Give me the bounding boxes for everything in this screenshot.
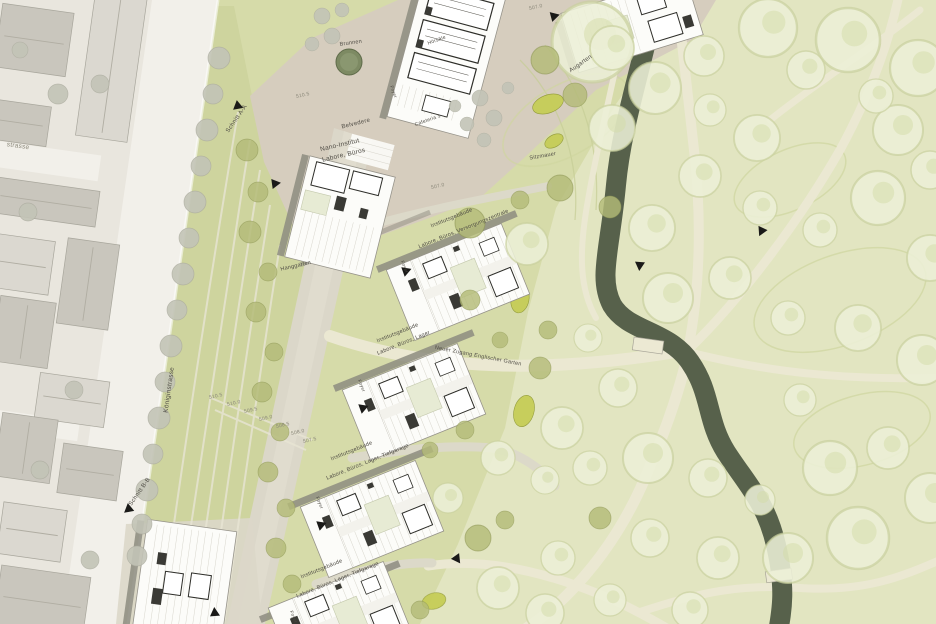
tree [589,507,611,529]
tree [502,82,514,94]
building-southwest [131,519,237,624]
tree [172,263,194,285]
tree [563,83,587,107]
tree [492,332,508,348]
tree [827,507,889,569]
city-block [57,443,123,501]
tree [481,441,515,475]
tree [803,441,857,495]
tree [335,3,349,17]
tree [246,302,266,322]
tree [529,357,551,379]
tree [456,421,474,439]
tree [599,369,637,407]
tree [531,466,559,494]
tree [184,191,206,213]
tree [784,384,816,416]
tree [65,381,83,399]
site-plan-canvas [0,0,936,624]
tree [689,459,727,497]
tree [196,119,218,141]
tree [179,228,199,248]
tree [143,444,163,464]
tree [12,42,28,58]
tree [496,511,514,529]
tree [897,335,936,385]
tree [745,485,775,515]
tree [433,483,463,513]
tree [460,290,480,310]
tree [763,533,813,583]
tree [629,205,675,251]
tree [859,79,893,113]
tree [739,0,797,57]
tree [511,191,529,209]
tree [890,40,936,96]
tree [132,514,152,534]
tree [574,324,602,352]
tree [271,423,289,441]
tree [81,551,99,569]
tree [631,519,669,557]
tree [547,175,573,201]
tree [148,407,170,429]
tree [506,223,548,265]
tree [239,221,261,243]
tree [672,592,708,624]
tree [867,427,909,469]
tree [679,155,721,197]
city-block [0,502,67,562]
tree [449,100,461,112]
tree [851,171,905,225]
tree [265,343,283,361]
tree [422,442,438,458]
tree [771,301,805,335]
tree [787,51,825,89]
tree [684,36,724,76]
tree [455,208,485,238]
tree [252,382,272,402]
tree [599,196,621,218]
tree [541,407,583,449]
tree [589,105,635,151]
tree [127,546,147,566]
tree [314,8,330,24]
tree [590,26,634,70]
tree [594,584,626,616]
city-block [0,295,56,368]
tree [136,479,158,501]
tree [477,567,519,609]
tree [266,538,286,558]
tree [835,305,881,351]
tree [236,139,258,161]
tree [19,203,37,221]
tree [155,372,175,392]
tree [160,335,182,357]
tree [411,601,429,619]
tree [623,433,673,483]
tree [743,191,777,225]
tree [526,594,564,624]
tree [91,75,109,93]
tree [208,47,230,69]
tree [259,263,277,281]
tree [191,156,211,176]
tree [643,273,693,323]
tree [803,213,837,247]
tree [629,62,681,114]
tree [486,110,502,126]
tree [573,451,607,485]
tree [167,300,187,320]
tree [709,257,751,299]
tree [697,537,739,579]
tree [477,133,491,147]
tree [460,117,474,131]
tree [734,115,780,161]
tree [203,84,223,104]
tree [324,28,340,44]
city-block [0,233,55,295]
tree [694,94,726,126]
fountain [336,49,362,75]
tree [48,84,68,104]
tree [816,8,880,72]
city-block [0,412,58,483]
tree [248,182,268,202]
city-block [0,3,74,76]
tree [305,37,319,51]
tree [465,525,491,551]
tree [541,541,575,575]
tree [539,321,557,339]
site-plan: strasseSchnitt A-ASchnitt B-BKöniginstra… [0,0,936,624]
tree [283,575,301,593]
tree [31,461,49,479]
tree [258,462,278,482]
tree [531,46,559,74]
tree [472,90,488,106]
tree [277,499,295,517]
